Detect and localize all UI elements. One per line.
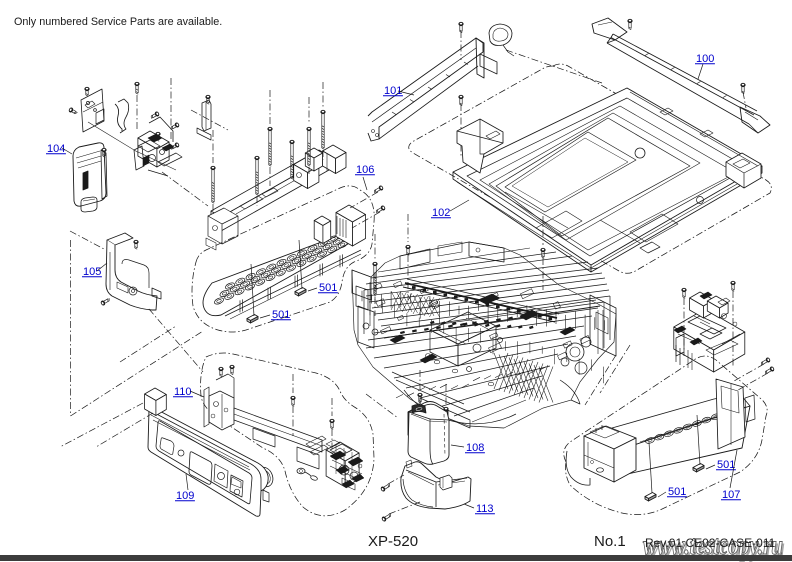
svg-text:501: 501 [272, 309, 290, 321]
svg-text:109: 109 [176, 490, 194, 502]
svg-text:106: 106 [356, 164, 374, 176]
svg-text:Rev.01 CE02-CASE-011: Rev.01 CE02-CASE-011 [645, 536, 776, 550]
svg-text:105: 105 [83, 266, 101, 278]
svg-text:501: 501 [717, 459, 735, 471]
svg-text:107: 107 [722, 489, 740, 501]
svg-text:501: 501 [668, 486, 686, 498]
svg-text:104: 104 [47, 143, 65, 155]
svg-text:110: 110 [174, 386, 192, 398]
svg-text:113: 113 [476, 503, 494, 515]
svg-text:501: 501 [319, 282, 337, 294]
svg-text:100: 100 [696, 53, 714, 65]
svg-text:102: 102 [432, 207, 450, 219]
svg-text:108: 108 [466, 442, 484, 454]
svg-text:101: 101 [384, 85, 402, 97]
svg-text:Only numbered Service Parts ar: Only numbered Service Parts are availabl… [14, 16, 222, 28]
svg-text:No.1: No.1 [594, 533, 626, 550]
svg-text:XP-520: XP-520 [368, 533, 418, 550]
